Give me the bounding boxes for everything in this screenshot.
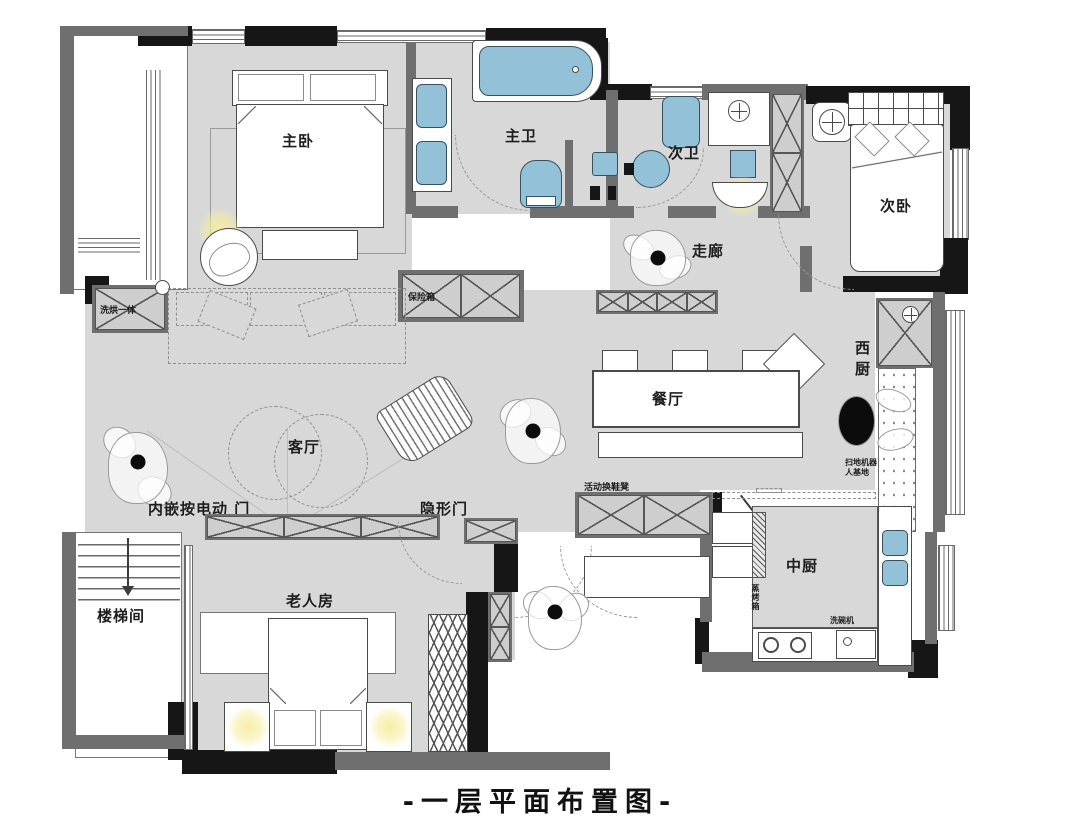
robot-vacuum-line1: 扫地机器 — [845, 458, 877, 468]
kitchen-left-counter-2 — [712, 546, 754, 578]
label-robot-vacuum: 扫地机器 人基地 — [845, 458, 877, 478]
shower-fitting-1 — [590, 186, 600, 200]
shoe-bench-cabinet — [575, 492, 713, 538]
kitchen-left-wedge — [752, 512, 766, 578]
elder-bed-fold-left — [270, 688, 286, 704]
wall-stairs-corner — [168, 702, 198, 760]
wardrobe-hall-column — [770, 92, 804, 214]
wall-stairs-left — [62, 532, 76, 744]
master-bed-bench — [262, 230, 358, 260]
dishwasher-glyph — [843, 637, 852, 646]
corridor-storage-row — [596, 290, 718, 314]
person-dining — [505, 398, 561, 464]
label-elder-room: 老人房 — [286, 590, 334, 611]
kitchen-sliding-door-dash — [712, 492, 876, 499]
label-second-bedroom: 次卧 — [880, 195, 912, 216]
wall-kitchen-right — [925, 532, 937, 644]
window-top-master — [192, 29, 245, 44]
label-dining-room: 餐厅 — [652, 388, 684, 409]
shower-partition — [565, 140, 573, 206]
label-dishwasher: 洗碗机 — [830, 616, 854, 626]
shoe-cell — [578, 495, 644, 535]
wardrobe-cell — [772, 153, 802, 212]
floor-plan-page: 主卧 主卫 次卫 次卧 走廊 — [0, 0, 1080, 829]
wall-elder-bottom — [182, 750, 337, 774]
label-washer-dryer: 洗烘一体 — [100, 303, 136, 316]
wall-masterbath-bottom-1 — [412, 206, 458, 218]
kitchen-left-counter-1 — [712, 512, 754, 544]
master-bed-pillow-right — [310, 74, 376, 101]
window-elder-left — [184, 545, 193, 750]
wall-secondbath-bottom-2 — [668, 206, 716, 218]
shower-control-master — [592, 152, 618, 176]
sink-master-1 — [416, 84, 447, 128]
storage-cell — [657, 292, 687, 312]
stove-burner-2 — [790, 637, 806, 653]
window-second-bedroom — [952, 148, 969, 240]
foyer-console — [584, 556, 710, 598]
second-bed-headboard — [848, 92, 944, 126]
living-circle-2 — [274, 414, 368, 508]
kitchen-sink-1 — [882, 530, 908, 556]
wardrobe-cell — [284, 516, 361, 538]
storage-cell — [628, 292, 658, 312]
basin-stem — [624, 163, 634, 175]
label-living-room: 客厅 — [288, 436, 320, 457]
cabinet-cell — [490, 594, 510, 627]
sink-master-2 — [416, 141, 447, 185]
storage-cell — [687, 292, 717, 312]
passage-cabinet-column — [488, 592, 512, 662]
elder-lamp-left — [228, 706, 268, 748]
ceiling-fan-glyph — [819, 109, 845, 135]
person-living — [108, 432, 168, 504]
cabinet-cell — [490, 627, 510, 660]
plan-title: -一层平面布置图- — [0, 780, 1080, 819]
storage-cell — [598, 292, 628, 312]
wall-stairs-bottom — [62, 735, 184, 749]
elder-bed-fold-right — [350, 688, 366, 704]
label-master-bedroom: 主卧 — [282, 130, 314, 151]
shoe-rack-zigzag — [428, 614, 468, 752]
person-corridor — [630, 230, 686, 286]
vanity-mirror — [730, 150, 756, 178]
label-corridor: 走廊 — [692, 240, 724, 261]
wall-secondbath-bottom-1 — [606, 206, 634, 218]
wall-hiddendoor-lower — [466, 592, 488, 762]
balcony-window-lines — [146, 70, 163, 280]
second-bed-blanket-fold — [852, 150, 942, 170]
label-steam-oven: 蒸烤箱 — [750, 584, 760, 611]
master-bed-fold-right — [364, 106, 382, 124]
hidden-door-cabinet — [464, 518, 518, 544]
person-westkitchen — [838, 396, 902, 446]
balcony-shelf-lines — [78, 238, 140, 254]
elder-bed-pillow-1 — [274, 710, 316, 746]
dining-table — [592, 370, 800, 428]
shower-second-bath — [662, 96, 700, 148]
wall-balcony-left — [60, 26, 74, 294]
label-master-bath: 主卫 — [505, 125, 537, 146]
label-chinese-kitchen: 中厨 — [786, 555, 818, 576]
master-bed-pillow-left — [238, 74, 304, 101]
stair-arrow-line — [127, 538, 129, 586]
safe-cell — [461, 274, 520, 318]
wall-westkitchen-right — [933, 292, 945, 532]
wardrobe-cell — [207, 516, 284, 538]
wardrobe-cell — [772, 94, 802, 153]
window-westkitchen — [945, 310, 965, 515]
master-bed-mattress — [236, 104, 384, 228]
wall-right-upper — [950, 86, 970, 150]
westkitchen-sink-glyph — [902, 306, 919, 323]
elder-bed-pillow-2 — [320, 710, 362, 746]
shoe-cell — [644, 495, 710, 535]
dining-bench — [598, 432, 803, 458]
shower-fitting-2 — [608, 186, 616, 200]
robot-vacuum-line2: 人基地 — [845, 468, 877, 478]
person-foyer — [528, 586, 582, 650]
label-safe-box: 保险箱 — [408, 290, 435, 303]
wall-secondbed-bottom — [843, 276, 967, 292]
elder-lamp-right — [370, 706, 410, 748]
vanity-basin-glyph — [728, 100, 750, 122]
stove-burner-1 — [763, 637, 779, 653]
window-kitchen — [938, 545, 955, 631]
label-stairwell: 楼梯间 — [97, 605, 145, 626]
wall-top-2 — [245, 26, 337, 46]
label-second-bath: 次卫 — [668, 142, 700, 163]
wall-balcony-top — [60, 26, 188, 36]
cabinet-cell — [466, 520, 516, 542]
label-west-kitchen: 西厨 — [852, 340, 873, 382]
stair-arrow-head — [122, 586, 134, 596]
wall-bottom-gray — [335, 752, 610, 770]
bathtub-drain — [572, 66, 579, 73]
kitchen-dishwasher — [836, 630, 876, 659]
kitchen-sink-2 — [882, 560, 908, 586]
master-bed-fold-left — [238, 106, 256, 124]
